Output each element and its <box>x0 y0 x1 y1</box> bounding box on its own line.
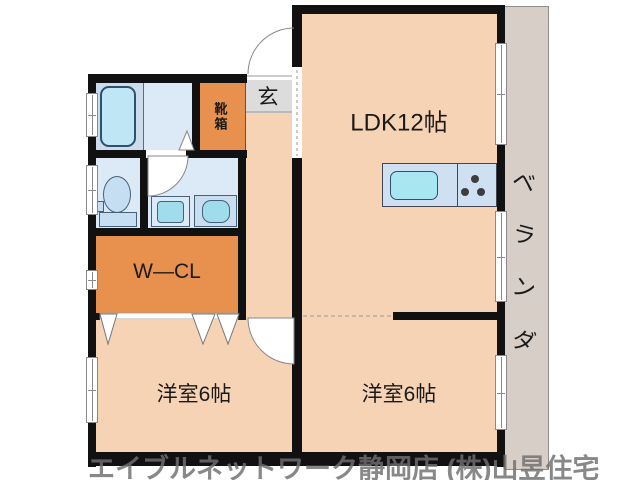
kitchen-counter-divider <box>457 164 458 206</box>
wall-wcl-right <box>238 158 246 320</box>
wall-ldk-bottom <box>393 312 497 320</box>
room-ldk-opening-floor <box>302 312 393 320</box>
window-bedroom-left <box>86 357 98 423</box>
hallway <box>246 113 292 320</box>
wall-right-1 <box>497 5 505 45</box>
veranda-char-2: ラ <box>508 214 539 253</box>
room-washroom <box>143 83 192 150</box>
wall-shoebox-left <box>192 80 200 152</box>
veranda-char-3: ン <box>508 267 539 306</box>
window-toilet <box>86 165 98 215</box>
washing-machine <box>157 201 184 223</box>
floor-plan: LDK12帖 洋室6帖 洋室6帖 W―CL 玄 靴箱 ベ ラ ン ダ エイブルネ… <box>0 0 640 480</box>
wall-toilet-lavatory-divider <box>140 158 148 228</box>
window-wcl <box>86 270 98 290</box>
stove-burner-1 <box>471 175 479 183</box>
wall-utility-top <box>88 74 247 83</box>
wall-ldk-left-top <box>292 5 302 67</box>
wall-left-4 <box>88 290 96 357</box>
closet-opening-track <box>100 313 238 319</box>
window-ldk-lower <box>495 211 507 302</box>
window-ldk-upper <box>495 43 507 145</box>
toilet-tank <box>99 212 137 227</box>
wall-bath-bottom-left <box>88 150 146 158</box>
toilet-bowl <box>103 176 131 213</box>
window-bedroom-right <box>495 355 507 430</box>
shoe-box-label: 靴箱 <box>211 102 230 132</box>
bedroom-left-label: 洋室6帖 <box>157 378 232 408</box>
veranda-char-4: ダ <box>508 320 539 359</box>
entrance-label: 玄 <box>258 81 279 111</box>
wall-wcl-top <box>88 228 246 236</box>
wall-left-3 <box>88 215 96 270</box>
window-bathroom <box>86 93 98 137</box>
wall-left-1 <box>88 74 96 93</box>
wall-ldk-left-bottom <box>292 158 302 453</box>
veranda-char-1: ベ <box>508 161 539 200</box>
walk-in-closet-label: W―CL <box>133 260 201 284</box>
wall-right-2 <box>497 145 505 211</box>
bathtub <box>100 86 136 147</box>
wall-wcl-bottom-stub <box>88 313 100 320</box>
kitchen-sink <box>390 171 438 200</box>
wall-ldk-top <box>292 5 505 14</box>
stove-burner-2 <box>461 188 469 196</box>
washbasin-bowl <box>202 200 230 223</box>
wall-right-3 <box>497 302 505 355</box>
watermark-text: エイブルネットワーク静岡店 (株)山昱住宅 <box>88 447 599 480</box>
veranda-label: ベ ラ ン ダ <box>509 163 539 356</box>
bedroom-right-label: 洋室6帖 <box>362 378 437 408</box>
front-door-arc <box>248 28 294 74</box>
stove-burner-3 <box>477 188 485 196</box>
ldk-label: LDK12帖 <box>350 103 447 138</box>
